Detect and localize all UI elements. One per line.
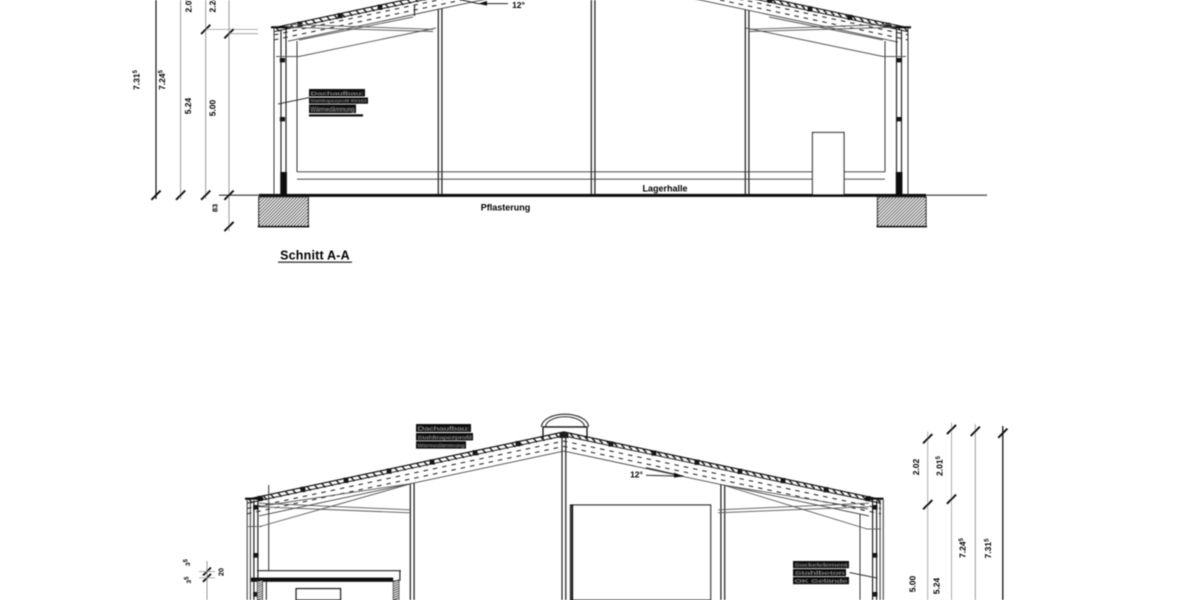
svg-text:20: 20 bbox=[217, 568, 226, 576]
svg-text:2.075: 2.075 bbox=[184, 0, 194, 12]
svg-text:5.24: 5.24 bbox=[183, 97, 193, 114]
svg-text:Dachaufbau:: Dachaufbau: bbox=[311, 91, 364, 97]
svg-text:Stahltrapezprofil 40/183: Stahltrapezprofil 40/183 bbox=[311, 99, 367, 103]
svg-text:OK Gelände: OK Gelände bbox=[795, 579, 849, 584]
svg-text:5.24: 5.24 bbox=[932, 577, 942, 594]
svg-text:Dachaufbau:: Dachaufbau: bbox=[418, 426, 470, 432]
svg-text:Wärmedämmung: Wärmedämmung bbox=[418, 443, 465, 449]
svg-text:Sockelelement: Sockelelement bbox=[795, 563, 849, 568]
svg-text:2.02: 2.02 bbox=[911, 458, 921, 475]
svg-text:5.00: 5.00 bbox=[908, 575, 918, 592]
svg-text:Wärmedämmung: Wärmedämmung bbox=[311, 108, 355, 114]
svg-text:Stahlbeton: Stahlbeton bbox=[795, 571, 846, 576]
svg-text:12°: 12° bbox=[630, 470, 643, 480]
svg-text:5.00: 5.00 bbox=[208, 99, 218, 116]
svg-text:Lagerhalle: Lagerhalle bbox=[642, 184, 687, 194]
svg-text:Pflasterung: Pflasterung bbox=[481, 202, 531, 212]
svg-text:2.245: 2.245 bbox=[208, 0, 218, 12]
svg-text:Stahltrapezprofil: Stahltrapezprofil bbox=[418, 435, 472, 441]
svg-text:12°: 12° bbox=[512, 0, 525, 10]
svg-text:83: 83 bbox=[211, 204, 220, 212]
svg-text:Schnitt A-A: Schnitt A-A bbox=[280, 249, 350, 263]
